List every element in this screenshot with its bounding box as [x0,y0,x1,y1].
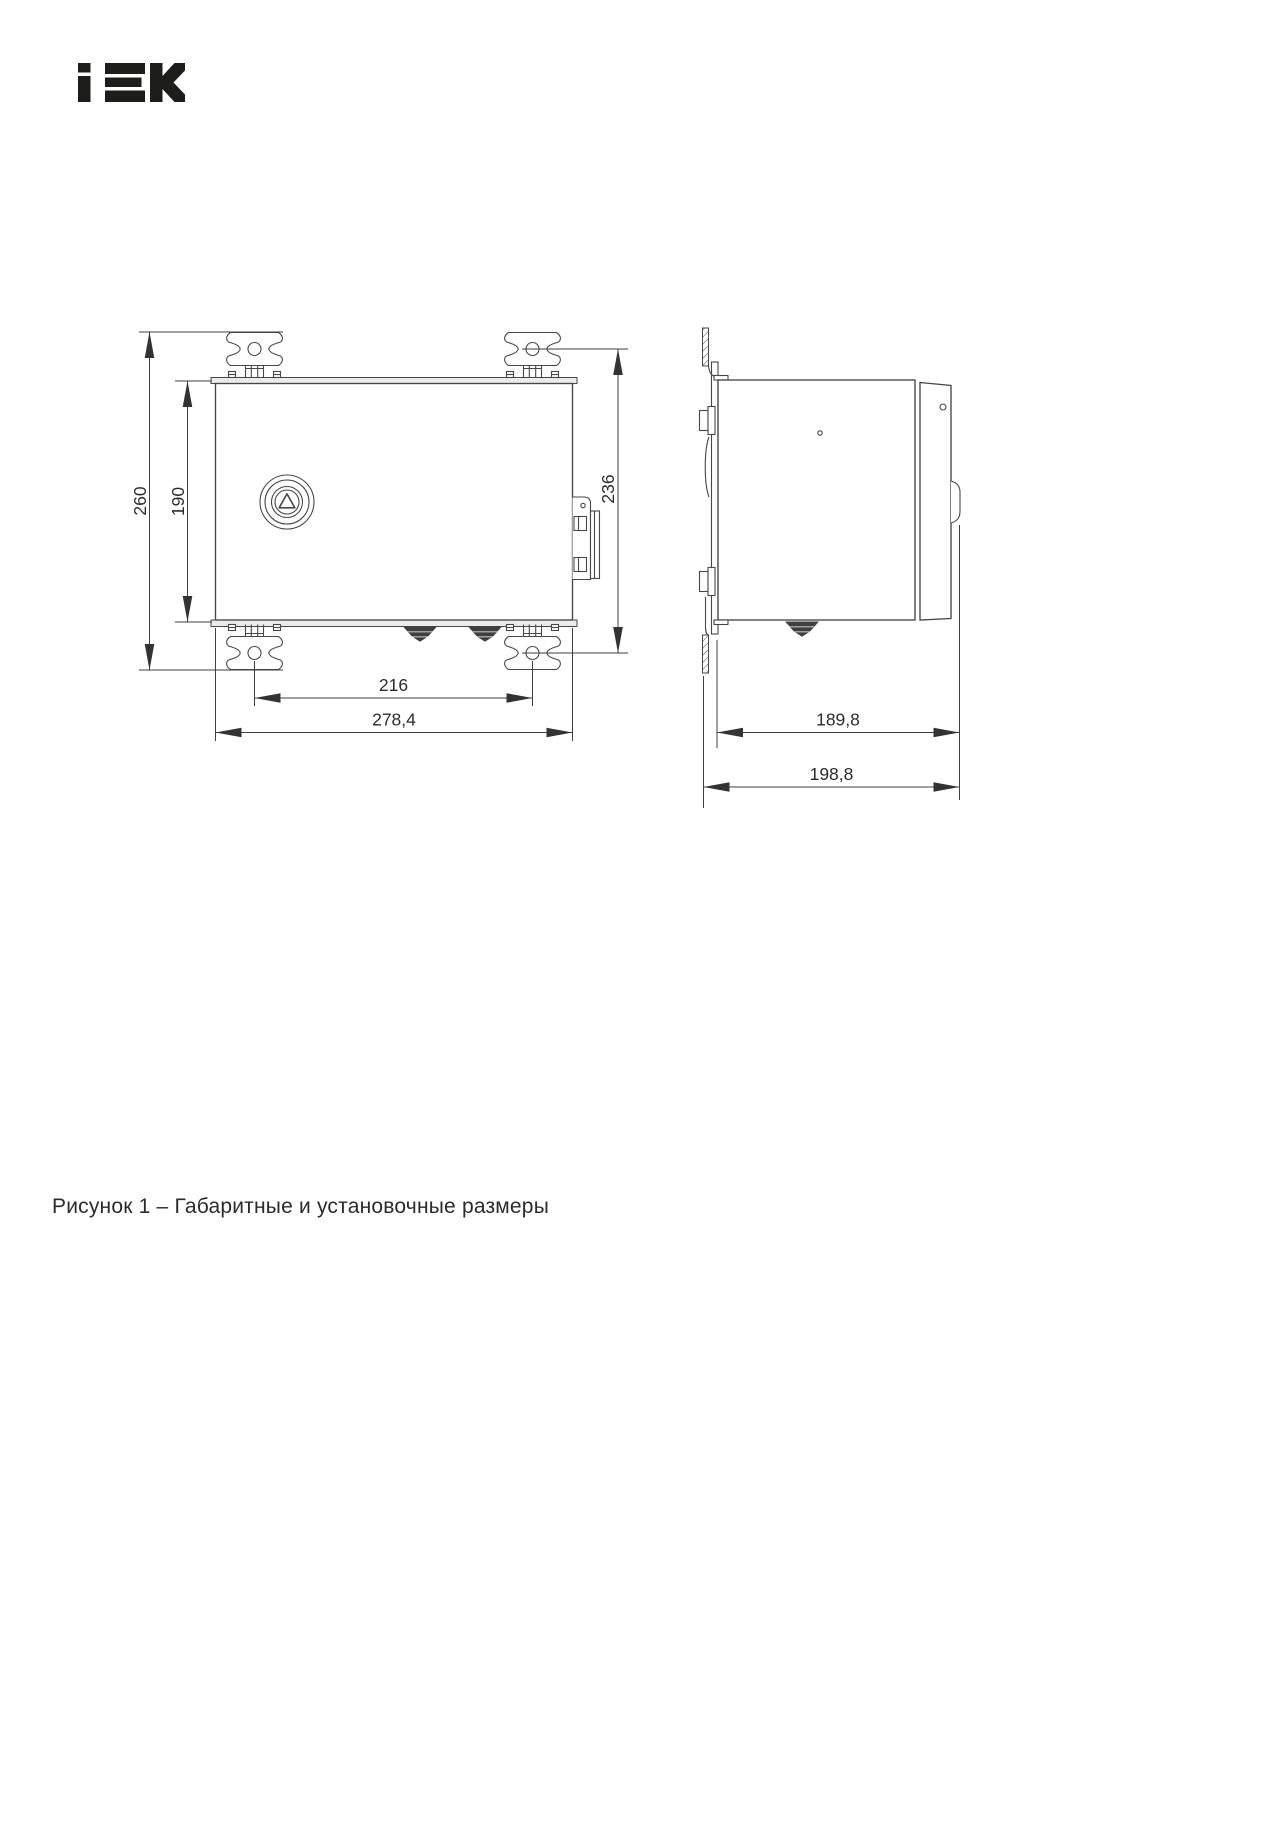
bottom-rail [211,620,577,627]
bracket-strip-bottom [703,635,709,673]
door-handle [951,481,960,523]
dimension-insulator-span-horizontal: 216 [255,661,533,706]
dimension-body-height: 190 [168,381,212,622]
bracket-bolt-bottom [700,572,709,592]
arrowhead-left [255,693,281,703]
arrowhead-up [613,349,623,375]
enclosure-front-body [216,384,573,621]
insulator-top-right [505,333,561,378]
rail-lip-bottom [714,620,728,625]
arrowhead-down [145,644,155,670]
arrowhead-right [934,782,960,792]
top-rail [211,378,577,384]
front-view: 260 190 236 [130,332,628,741]
dim-label-body-depth: 189,8 [816,710,860,730]
bracket-strip-top [703,328,709,366]
dim-label-overall-depth: 198,8 [810,764,854,784]
dimension-overall-depth: 198,8 [704,676,960,808]
insulator-top-left [227,333,283,378]
arrowhead-right [547,728,573,738]
cable-gland-front-left [403,627,437,642]
bracket-hook-top [705,437,709,497]
dim-label-insulator-span-vertical: 236 [598,474,618,503]
arrowhead-down [613,627,623,653]
cable-gland-front-right [468,627,502,642]
dim-label-insulator-span-horizontal: 216 [379,675,408,695]
arrowhead-right [507,693,533,703]
door-panel [920,383,951,621]
cable-gland-side [785,622,819,637]
arrowhead-up [145,332,155,358]
dim-label-overall-height: 260 [130,486,150,515]
arrowhead-left [704,782,730,792]
door-hinge [573,497,600,580]
side-view: 189,8 198,8 [700,328,961,808]
figure-caption: Рисунок 1 – Габаритные и установочные ра… [52,1195,549,1219]
bracket-hook-bottom [706,597,709,635]
arrowhead-left [717,728,743,738]
arrowhead-down [183,596,193,622]
dim-label-body-height: 190 [168,487,188,516]
arrowhead-up [183,381,193,407]
arrowhead-right [934,728,960,738]
dim-label-overall-width: 278,4 [372,710,416,730]
bracket-bolt-top [700,411,709,431]
technical-drawing: 260 190 236 [0,0,1280,1821]
document-page: IEK [0,0,1280,1821]
arrowhead-left [216,728,242,738]
enclosure-side-body [718,380,915,620]
